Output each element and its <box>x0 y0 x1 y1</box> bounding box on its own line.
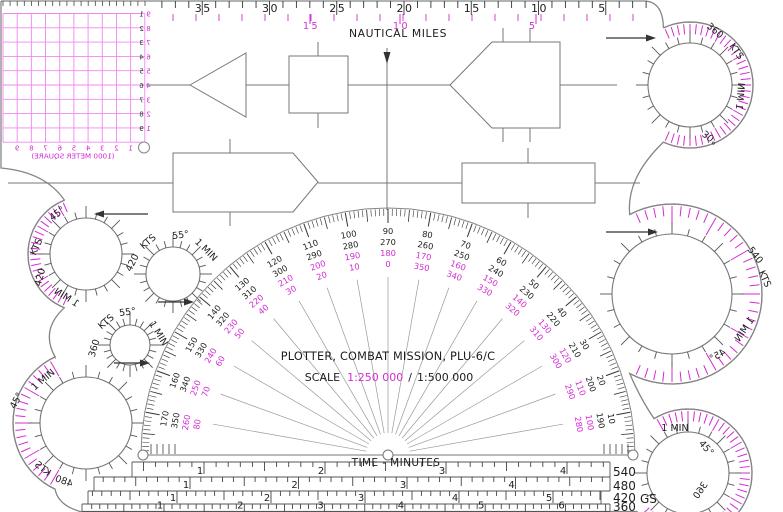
protractor-tick <box>408 210 409 222</box>
protractor-tick <box>220 275 225 280</box>
circle-tick <box>648 61 654 65</box>
circle-tick <box>652 47 660 55</box>
nm-label: 5 <box>338 2 345 15</box>
speed-circle-hole <box>146 247 200 301</box>
grid-row-number-magenta: 9 <box>146 11 150 19</box>
protractor-tick <box>146 412 160 414</box>
mag-edge-tick <box>730 235 737 242</box>
protractor-tick <box>200 297 211 306</box>
protractor-tick <box>240 259 244 265</box>
scale-number: 2 <box>237 501 243 512</box>
protractor-tick <box>276 236 279 242</box>
circle-tick <box>199 265 206 267</box>
grid-row-number-black: 7 <box>139 96 143 104</box>
circle-tick <box>709 431 713 437</box>
protractor-tick <box>581 310 587 314</box>
scale-label: SCALE <box>305 371 340 384</box>
protractor-tick <box>566 297 577 306</box>
mag-edge-tick <box>739 484 749 486</box>
mag-edge-tick <box>645 368 648 378</box>
pivot-hole <box>138 450 148 460</box>
mag-edge-tick <box>723 427 730 434</box>
protractor-number: 80 <box>191 418 203 430</box>
protractor-tick <box>345 213 347 227</box>
circle-tick <box>730 310 737 312</box>
protractor-tick <box>243 256 247 262</box>
protractor-tick <box>620 395 627 397</box>
mag-edge-tick <box>695 136 696 146</box>
protractor-number: 70 <box>199 385 212 398</box>
protractor-tick <box>417 211 418 218</box>
circle-tick <box>117 322 121 328</box>
circle-tick <box>728 461 735 463</box>
protractor-tick <box>184 317 190 321</box>
protractor-tick <box>593 328 599 332</box>
circle-tick <box>111 279 119 287</box>
protractor-number: 80 <box>421 229 433 241</box>
circle-tick <box>642 461 649 463</box>
protractor-tick <box>481 229 484 235</box>
arrow-head-icon <box>94 211 104 218</box>
time-minutes-label: TIME - MINUTES <box>351 457 441 469</box>
protractor-tick <box>588 321 594 325</box>
circle-tick <box>156 245 160 251</box>
circle-tick <box>126 446 132 450</box>
grid-row-number-black: 4 <box>139 53 144 61</box>
circle-tick <box>724 324 730 328</box>
protractor-tick <box>167 347 173 350</box>
protractor-tick <box>316 220 318 227</box>
circle-tick <box>126 397 132 401</box>
protractor-tick <box>597 336 603 339</box>
protractor-tick <box>586 317 592 321</box>
mag-edge-tick <box>718 223 724 231</box>
protractor-tick <box>362 210 363 217</box>
protractor-number: 10 <box>606 413 618 425</box>
protractor-tick <box>308 222 310 229</box>
scale-number: 4 <box>452 493 458 504</box>
circle-tick <box>104 350 111 352</box>
protractor-tick <box>350 212 351 219</box>
circle-tick <box>121 243 128 245</box>
protractor-tick <box>192 307 198 311</box>
scale-separator: / <box>408 371 412 384</box>
scale-number: 2 <box>291 480 297 491</box>
scale-number: 1 <box>157 501 163 512</box>
circle-tick <box>109 463 113 469</box>
mag-edge-tick <box>25 450 40 459</box>
mag-edge-tick <box>724 229 731 236</box>
mag-edge-tick <box>713 419 720 430</box>
circle-tick <box>117 233 123 237</box>
protractor-tick <box>211 284 216 289</box>
circle-tick <box>701 126 703 133</box>
circle-tick <box>677 38 679 45</box>
nm-label: 3 <box>195 2 202 15</box>
circle-tick <box>164 300 166 307</box>
grid-row-number-black: 8 <box>139 111 143 119</box>
grid-row-number-magenta: 5 <box>146 68 150 76</box>
mag-edge-tick <box>740 467 750 468</box>
circle-tick <box>666 121 670 127</box>
symbol-pentagon-right <box>173 153 318 212</box>
circle-tick <box>726 61 732 65</box>
grid-caption: (1000 METER SQUARE) <box>31 152 114 161</box>
mag-edge-tick <box>724 123 731 130</box>
protractor-tick <box>333 215 335 222</box>
protractor-tick <box>622 404 629 405</box>
plotter-title: PLOTTER, COMBAT MISSION, PLU-6/C <box>281 350 495 363</box>
scale-number: 5 <box>546 493 552 504</box>
circle-tick <box>196 288 202 292</box>
grid-row-number-magenta: 3 <box>146 96 150 104</box>
mag-edge-tick <box>18 442 28 445</box>
protractor-tick <box>320 219 322 226</box>
mag-edge-tick <box>730 437 738 443</box>
mag-edge-tick <box>688 370 690 380</box>
circle-tick <box>44 263 51 265</box>
scale-number: 1 <box>183 480 189 491</box>
protractor-tick <box>625 425 632 426</box>
protractor-tick <box>254 249 258 255</box>
protractor-ray <box>399 301 477 436</box>
mag-edge-tick <box>730 498 741 505</box>
protractor-tick <box>428 213 430 227</box>
protractor-tick <box>603 347 609 350</box>
protractor-tick <box>160 363 166 366</box>
circle-tick <box>111 220 119 228</box>
grid-row-number-black: 5 <box>139 68 143 76</box>
protractor-tick <box>606 371 619 376</box>
circle-tick <box>135 319 137 326</box>
protractor-tick <box>554 278 559 283</box>
scale-number: 4 <box>508 480 514 491</box>
mag-edge-tick <box>739 66 749 69</box>
circle-tick <box>614 261 620 265</box>
circle-tick <box>35 435 42 437</box>
protractor-tick <box>149 395 156 397</box>
protractor-tick <box>485 230 488 236</box>
circle-tick <box>702 346 706 352</box>
circle-tick <box>107 355 113 359</box>
mag-edge-tick <box>677 25 679 35</box>
circle-tick <box>187 245 191 251</box>
protractor-tick <box>548 272 553 277</box>
mag-edge-tick <box>671 27 674 37</box>
protractor-ray <box>299 301 377 436</box>
mag-edge-tick <box>682 411 683 421</box>
circle-tick <box>652 115 660 123</box>
protractor-tick <box>566 290 571 295</box>
protractor-tick <box>328 216 330 223</box>
speed-circle-540: 540KTS1 MIN45° <box>600 204 773 384</box>
mag-edge-tick <box>44 285 51 292</box>
protractor-number: 350 <box>413 261 430 274</box>
circle-tick <box>709 509 713 512</box>
speed-360-label: 360 <box>613 500 636 512</box>
scale-number: 2 <box>318 466 324 477</box>
protractor-tick <box>194 304 200 308</box>
scale-number: 1 <box>197 466 203 477</box>
protractor-tick <box>449 217 452 229</box>
circle-tick <box>72 372 74 379</box>
speed-circle-label: 30° <box>700 127 720 146</box>
map-symbols <box>8 28 640 226</box>
protractor-tick <box>616 412 630 414</box>
speed-circle-360-top: 360KTS1 MIN30° <box>606 21 753 148</box>
mag-edge-tick <box>671 134 674 144</box>
protractor-tick <box>504 240 507 246</box>
circle-tick <box>147 355 153 359</box>
circle-tick <box>724 261 730 265</box>
protractor-tick <box>532 259 536 265</box>
mag-edge-tick <box>680 372 681 382</box>
circle-tick <box>119 456 127 464</box>
speed-circle-420-mid: 420KTS55°1 MIN <box>124 229 219 313</box>
mag-edge-tick <box>735 242 743 248</box>
protractor-tick <box>614 391 626 394</box>
protractor-tick <box>466 222 468 229</box>
nm-label: 0 <box>540 2 547 15</box>
circle-tick <box>49 233 55 237</box>
scale-number: 1 <box>170 493 176 504</box>
protractor-tick <box>624 417 631 418</box>
circle-tick <box>639 236 643 242</box>
protractor-tick <box>610 363 616 366</box>
mag-edge-tick <box>663 206 664 216</box>
protractor-tick <box>205 290 210 295</box>
protractor-tick <box>425 212 426 219</box>
protractor-tick <box>177 328 183 332</box>
grid-row-number-magenta: 1 <box>146 125 150 133</box>
circle-tick <box>196 257 202 261</box>
speed-circle-label: 1 MIN <box>733 315 757 344</box>
mag-edge-tick <box>736 448 745 452</box>
protractor-tick <box>154 379 161 381</box>
protractor-tick <box>515 246 519 252</box>
mag-edge-tick <box>654 208 656 218</box>
protractor-tick <box>233 264 237 269</box>
nm-mag-label: 1 <box>303 21 309 32</box>
speed-circle-hole <box>50 218 122 290</box>
mag-edge-tick <box>730 346 737 353</box>
circle-tick <box>699 427 701 434</box>
circle-tick <box>49 272 55 276</box>
protractor-tick <box>474 225 477 232</box>
mag-edge-tick <box>684 136 685 146</box>
mag-edge-tick <box>736 494 745 498</box>
circle-tick <box>728 484 735 486</box>
protractor-tick <box>162 359 168 362</box>
circle-tick <box>643 72 650 74</box>
mag-edge-tick <box>654 370 656 380</box>
nm-label: 5 <box>203 2 210 15</box>
circle-tick <box>726 106 732 110</box>
protractor-tick <box>535 261 539 267</box>
mag-edge-tick <box>731 115 739 121</box>
utm-grid: 192837465564738291123456789 <box>3 1 151 153</box>
protractor-tick <box>511 244 515 250</box>
protractor-ray <box>410 424 564 451</box>
mag-edge-tick <box>693 411 694 421</box>
plotter-template-sheet: 1928374655647382911234567893530252015105… <box>0 0 783 512</box>
protractor-tick <box>442 215 444 222</box>
speed-circle-label: 420 <box>124 252 142 273</box>
protractor-number: 180 <box>380 248 396 258</box>
protractor-tick <box>296 227 299 233</box>
protractor-tick <box>538 264 542 269</box>
grid-row-number-black: 2 <box>139 25 143 33</box>
circle-tick <box>72 467 74 474</box>
protractor-tick <box>487 232 492 243</box>
nautical-miles-label: NAUTICAL MILES <box>349 27 447 40</box>
protractor-tick <box>147 404 154 405</box>
circle-tick <box>123 364 125 371</box>
mag-edge-tick <box>701 25 703 35</box>
mag-edge-tick <box>748 310 758 312</box>
generated-graphics: 1928374655647382911234567893530252015105… <box>1 1 773 512</box>
circle-tick <box>199 281 206 283</box>
protractor-tick <box>152 387 159 389</box>
scale-number: 2 <box>264 493 270 504</box>
protractor-tick <box>202 294 207 299</box>
mag-edge-tick <box>719 423 725 431</box>
circle-tick <box>651 436 659 444</box>
grid-col-number: 1 <box>128 145 132 153</box>
speed-circle-label: KTS <box>138 232 158 252</box>
protractor-tick <box>617 383 624 385</box>
grid-row-number-magenta: 6 <box>146 53 151 61</box>
mag-edge-tick <box>696 210 699 220</box>
north-arrow-icon <box>384 52 391 64</box>
protractor-tick <box>606 355 612 358</box>
protractor-tick <box>250 251 254 257</box>
protractor-tick <box>288 230 291 236</box>
grid-origin-hole <box>139 142 150 153</box>
circle-tick <box>666 43 670 49</box>
circle-tick <box>123 319 125 326</box>
circle-tick <box>607 310 614 312</box>
protractor-tick <box>182 321 188 325</box>
circle-tick <box>104 338 111 340</box>
mag-edge-tick <box>730 442 741 449</box>
grid-row-number-black: 3 <box>139 39 143 47</box>
protractor-tick <box>625 421 632 422</box>
mag-edge-tick <box>740 72 750 74</box>
protractor-tick <box>528 256 532 262</box>
mag-edge-tick <box>688 208 690 218</box>
circle-tick <box>44 243 51 245</box>
circle-tick <box>135 364 137 371</box>
circle-tick <box>140 322 144 328</box>
mag-edge-tick <box>696 368 699 378</box>
protractor-tick <box>563 287 568 292</box>
speed-circle-label: KTS <box>756 269 773 289</box>
grid-row-number-black: 9 <box>139 125 143 133</box>
speed-circle-label: 45° <box>8 391 26 411</box>
speed-circle-hole <box>40 377 132 469</box>
circle-tick <box>140 281 147 283</box>
speed-circle-label: 1 MIN <box>661 423 688 434</box>
speed-540-label: 540 <box>613 465 636 479</box>
circle-tick <box>149 350 156 352</box>
protractor-tick <box>341 214 342 221</box>
protractor-number: 20 <box>315 269 328 282</box>
mag-edge-tick <box>680 206 681 216</box>
protractor-tick <box>157 371 170 376</box>
scale-number: 6 <box>558 501 564 512</box>
grid-row-number-black: 1 <box>139 11 143 19</box>
protractor-tick <box>304 224 309 237</box>
circle-tick <box>75 212 77 219</box>
protractor-tick <box>545 269 550 274</box>
protractor-tick <box>153 383 160 385</box>
mag-edge-tick <box>740 478 750 479</box>
protractor-tick <box>574 300 579 304</box>
protractor-tick <box>611 367 618 370</box>
circle-tick <box>192 293 200 301</box>
grid-row-number-magenta: 8 <box>146 25 150 33</box>
symbol-pentagon-left <box>450 42 560 128</box>
protractor-tick <box>458 220 460 227</box>
scale-number: 4 <box>560 466 566 477</box>
protractor-tick <box>599 340 605 343</box>
protractor-tick <box>324 217 327 229</box>
protractor-tick <box>601 343 607 346</box>
speed-circle-label: 540 <box>745 245 765 266</box>
circle-tick <box>117 272 123 276</box>
speed-circle-label: 55° <box>119 306 137 319</box>
protractor-tick <box>237 261 241 267</box>
circle-tick <box>643 96 650 98</box>
circle-tick <box>688 229 690 236</box>
circle-tick <box>702 236 706 242</box>
mag-edge-tick <box>38 226 48 232</box>
mag-edge-tick <box>704 365 708 374</box>
protractor-tick <box>568 294 573 299</box>
circle-tick <box>144 257 150 261</box>
grid-row-number-black: 6 <box>139 82 144 90</box>
protractor-tick <box>208 287 213 292</box>
protractor-tick <box>217 278 222 283</box>
grid-col-number: 9 <box>15 145 19 153</box>
speed-circle-label: KTS <box>727 41 746 62</box>
protractor-tick <box>358 211 359 218</box>
circle-tick <box>621 243 629 251</box>
protractor-tick <box>467 224 472 237</box>
nm-mag-label: 5 <box>311 21 317 32</box>
mag-edge-tick <box>730 504 738 510</box>
protractor-tick <box>354 211 355 218</box>
speed-circle-label: 1 MIN <box>733 82 746 110</box>
scale-number: 3 <box>317 501 323 512</box>
mag-edge-tick <box>15 429 25 430</box>
protractor-tick <box>623 408 630 409</box>
circle-tick <box>724 494 730 498</box>
protractor-tick <box>537 267 546 278</box>
circle-tick <box>144 288 150 292</box>
circle-tick <box>717 436 725 444</box>
mag-edge-tick <box>699 412 701 422</box>
protractor: 1703502608016034025070150330240601403202… <box>138 208 638 460</box>
protractor-tick <box>500 238 503 244</box>
circle-tick <box>180 300 182 307</box>
protractor-tick <box>273 238 276 244</box>
protractor-ray <box>213 424 367 451</box>
protractor-tick <box>579 307 585 311</box>
scale-secondary: 1:500 000 <box>417 371 473 384</box>
protractor-tick <box>621 434 633 435</box>
